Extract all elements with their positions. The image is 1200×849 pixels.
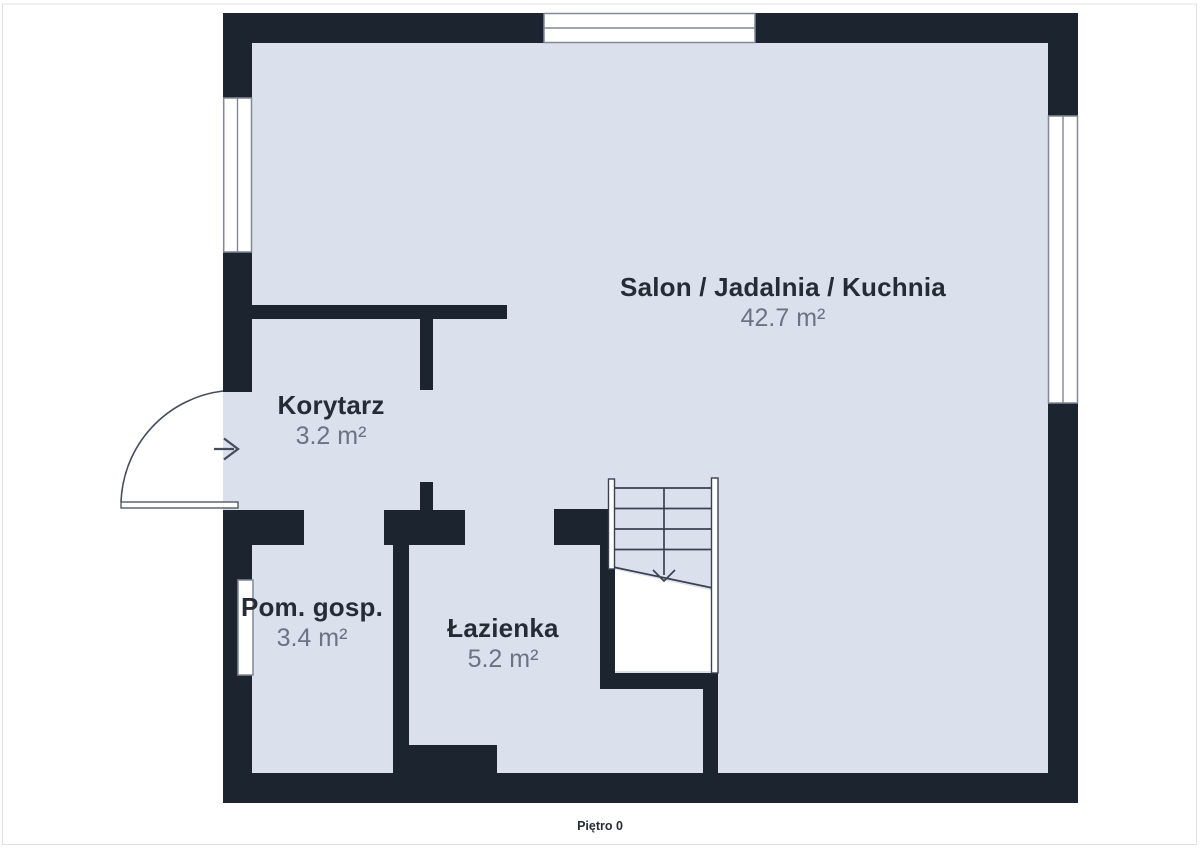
wall-korytarz-top [252, 305, 507, 319]
room-area-lazienka: 5.2 m² [447, 644, 558, 675]
room-area-korytarz: 3.2 m² [277, 421, 384, 452]
floorplan-canvas: Salon / Jadalnia / Kuchnia 42.7 m² Koryt… [0, 0, 1200, 849]
wall-lazienka-left [393, 545, 409, 745]
floorplan-drawing [0, 0, 1200, 849]
floor-area-entrance-opening [223, 392, 252, 510]
wall-stairs-south [600, 673, 718, 689]
wall-understairs-east [703, 689, 718, 773]
room-name-lazienka: Łazienka [447, 613, 558, 644]
door-leaf [121, 502, 238, 508]
room-label-lazienka: Łazienka 5.2 m² [447, 613, 558, 675]
stair-rail-left [609, 479, 615, 569]
room-name-salon: Salon / Jadalnia / Kuchnia [620, 272, 946, 303]
room-label-korytarz: Korytarz 3.2 m² [277, 390, 384, 452]
door-swing-arc [121, 391, 223, 502]
room-area-salon: 42.7 m² [620, 303, 946, 334]
wall-lazienka-top [384, 510, 465, 545]
wall-stairs-head [554, 509, 613, 545]
room-area-pomgosp: 3.4 m² [241, 623, 383, 654]
stair-rail-right [712, 478, 719, 673]
wall-pomgosp-top [252, 510, 304, 545]
room-label-pomgosp: Pom. gosp. 3.4 m² [241, 592, 383, 654]
entrance-door [121, 391, 238, 508]
room-label-salon: Salon / Jadalnia / Kuchnia 42.7 m² [620, 272, 946, 334]
wall-korytarz-stub-lower [420, 482, 433, 510]
room-name-korytarz: Korytarz [277, 390, 384, 421]
room-name-pomgosp: Pom. gosp. [241, 592, 383, 623]
wall-exterior-bottom [223, 773, 1078, 803]
wall-lazienka-bottom [393, 745, 497, 773]
floor-caption: Piętro 0 [577, 819, 623, 833]
wall-korytarz-stub-upper [420, 319, 433, 390]
